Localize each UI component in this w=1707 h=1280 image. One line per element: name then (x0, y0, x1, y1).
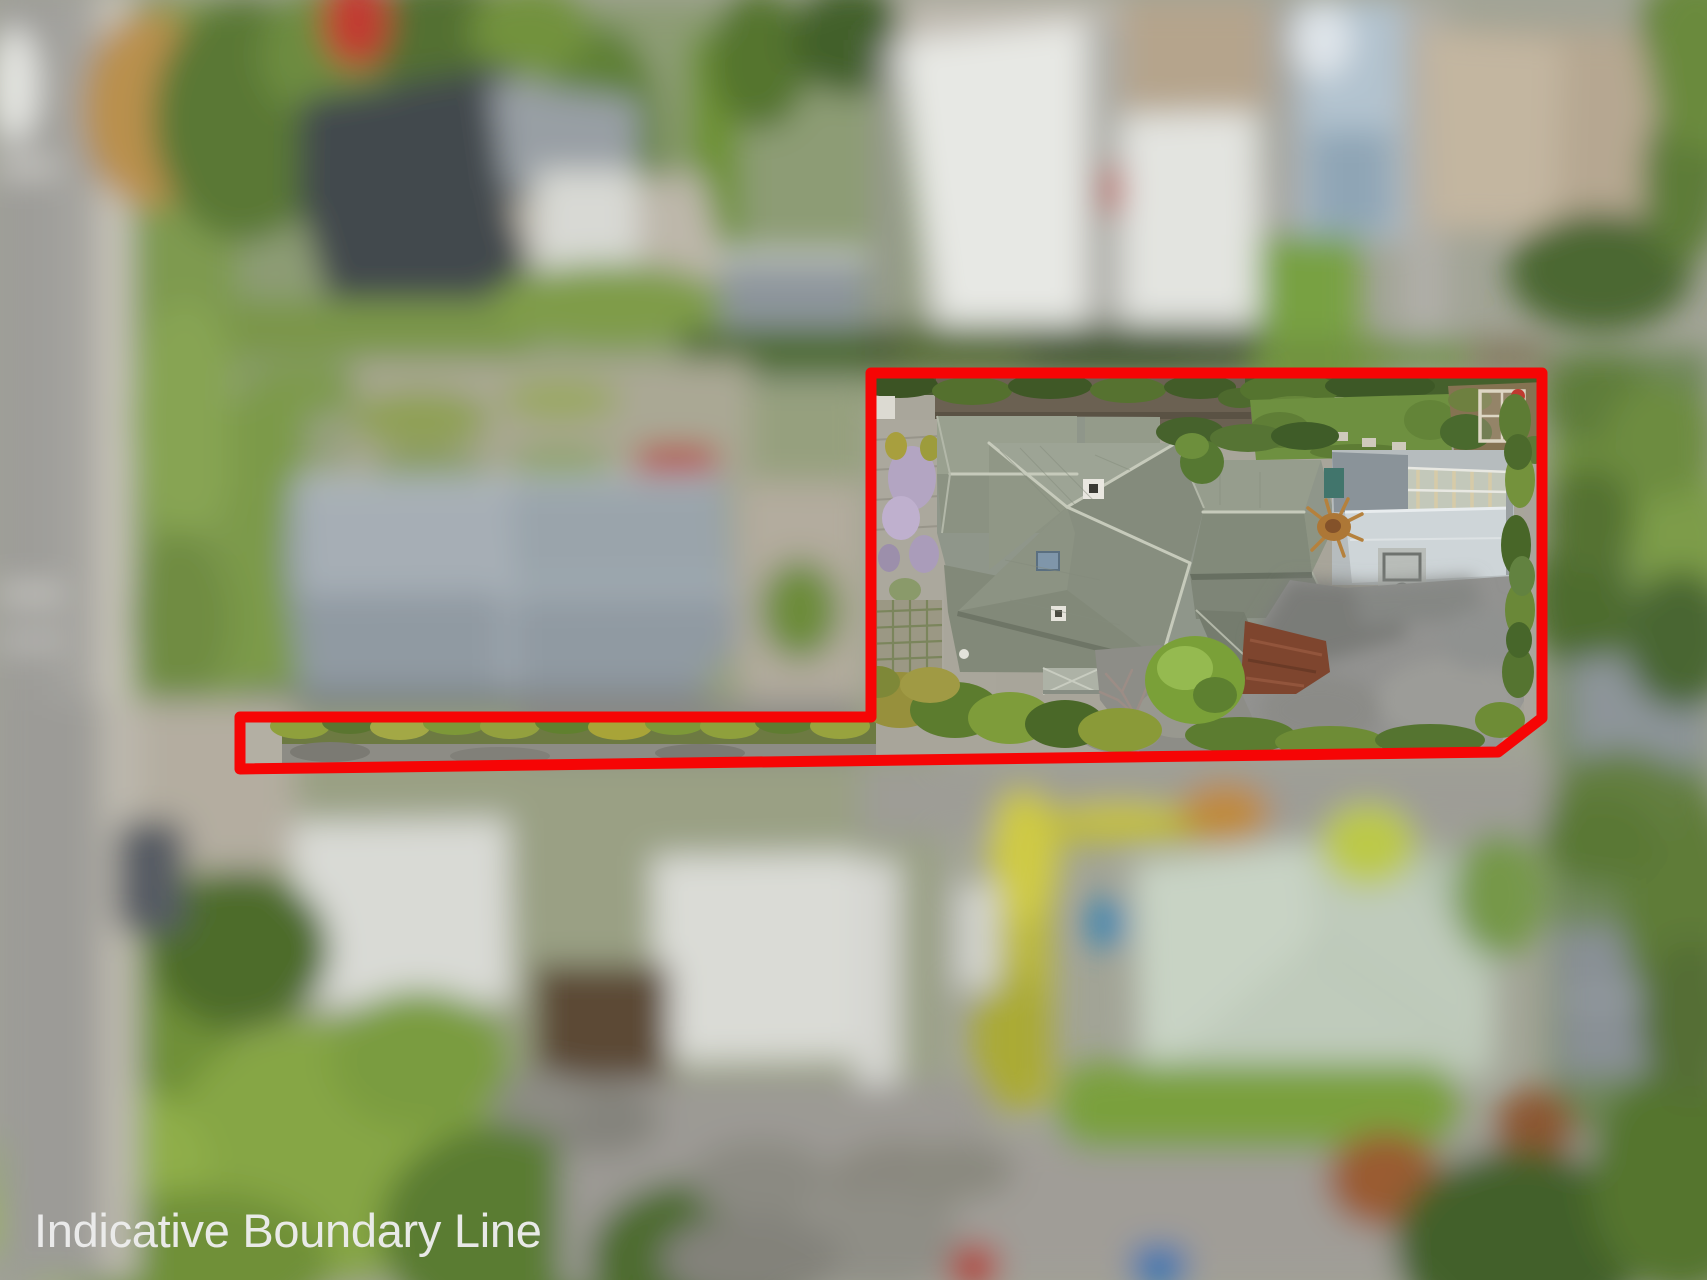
svg-text:Indicative Boundary Line: Indicative Boundary Line (34, 1204, 542, 1257)
